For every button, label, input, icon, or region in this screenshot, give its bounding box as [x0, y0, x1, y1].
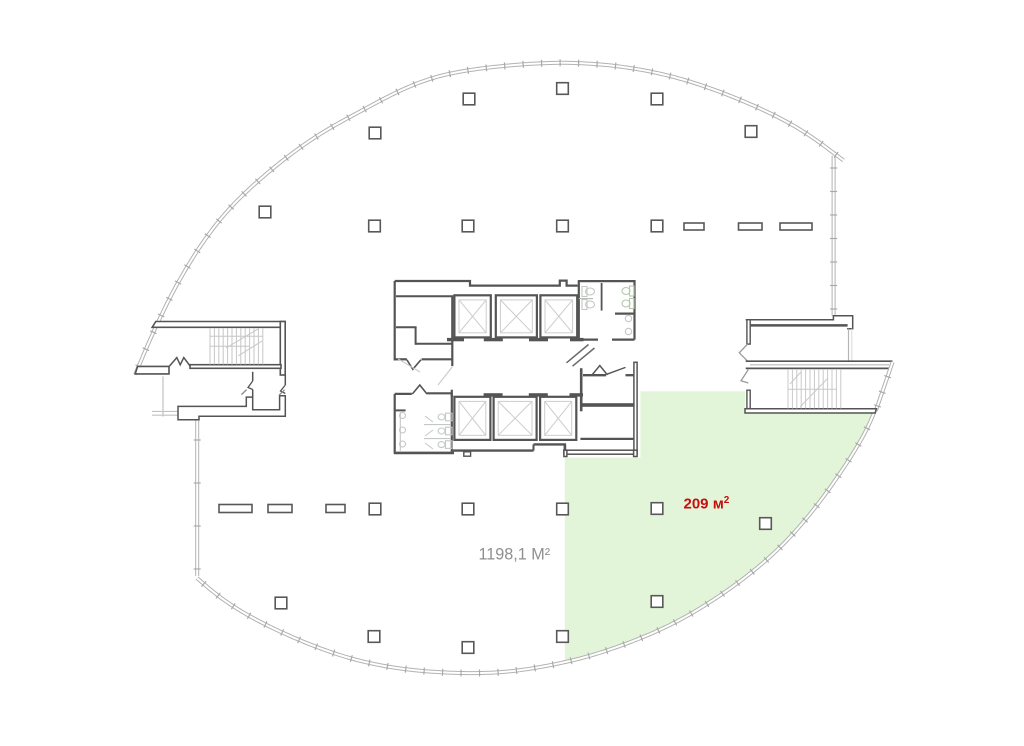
svg-text:209 м2: 209 м2: [684, 495, 730, 513]
svg-text:1198,1 М²: 1198,1 М²: [479, 546, 551, 564]
